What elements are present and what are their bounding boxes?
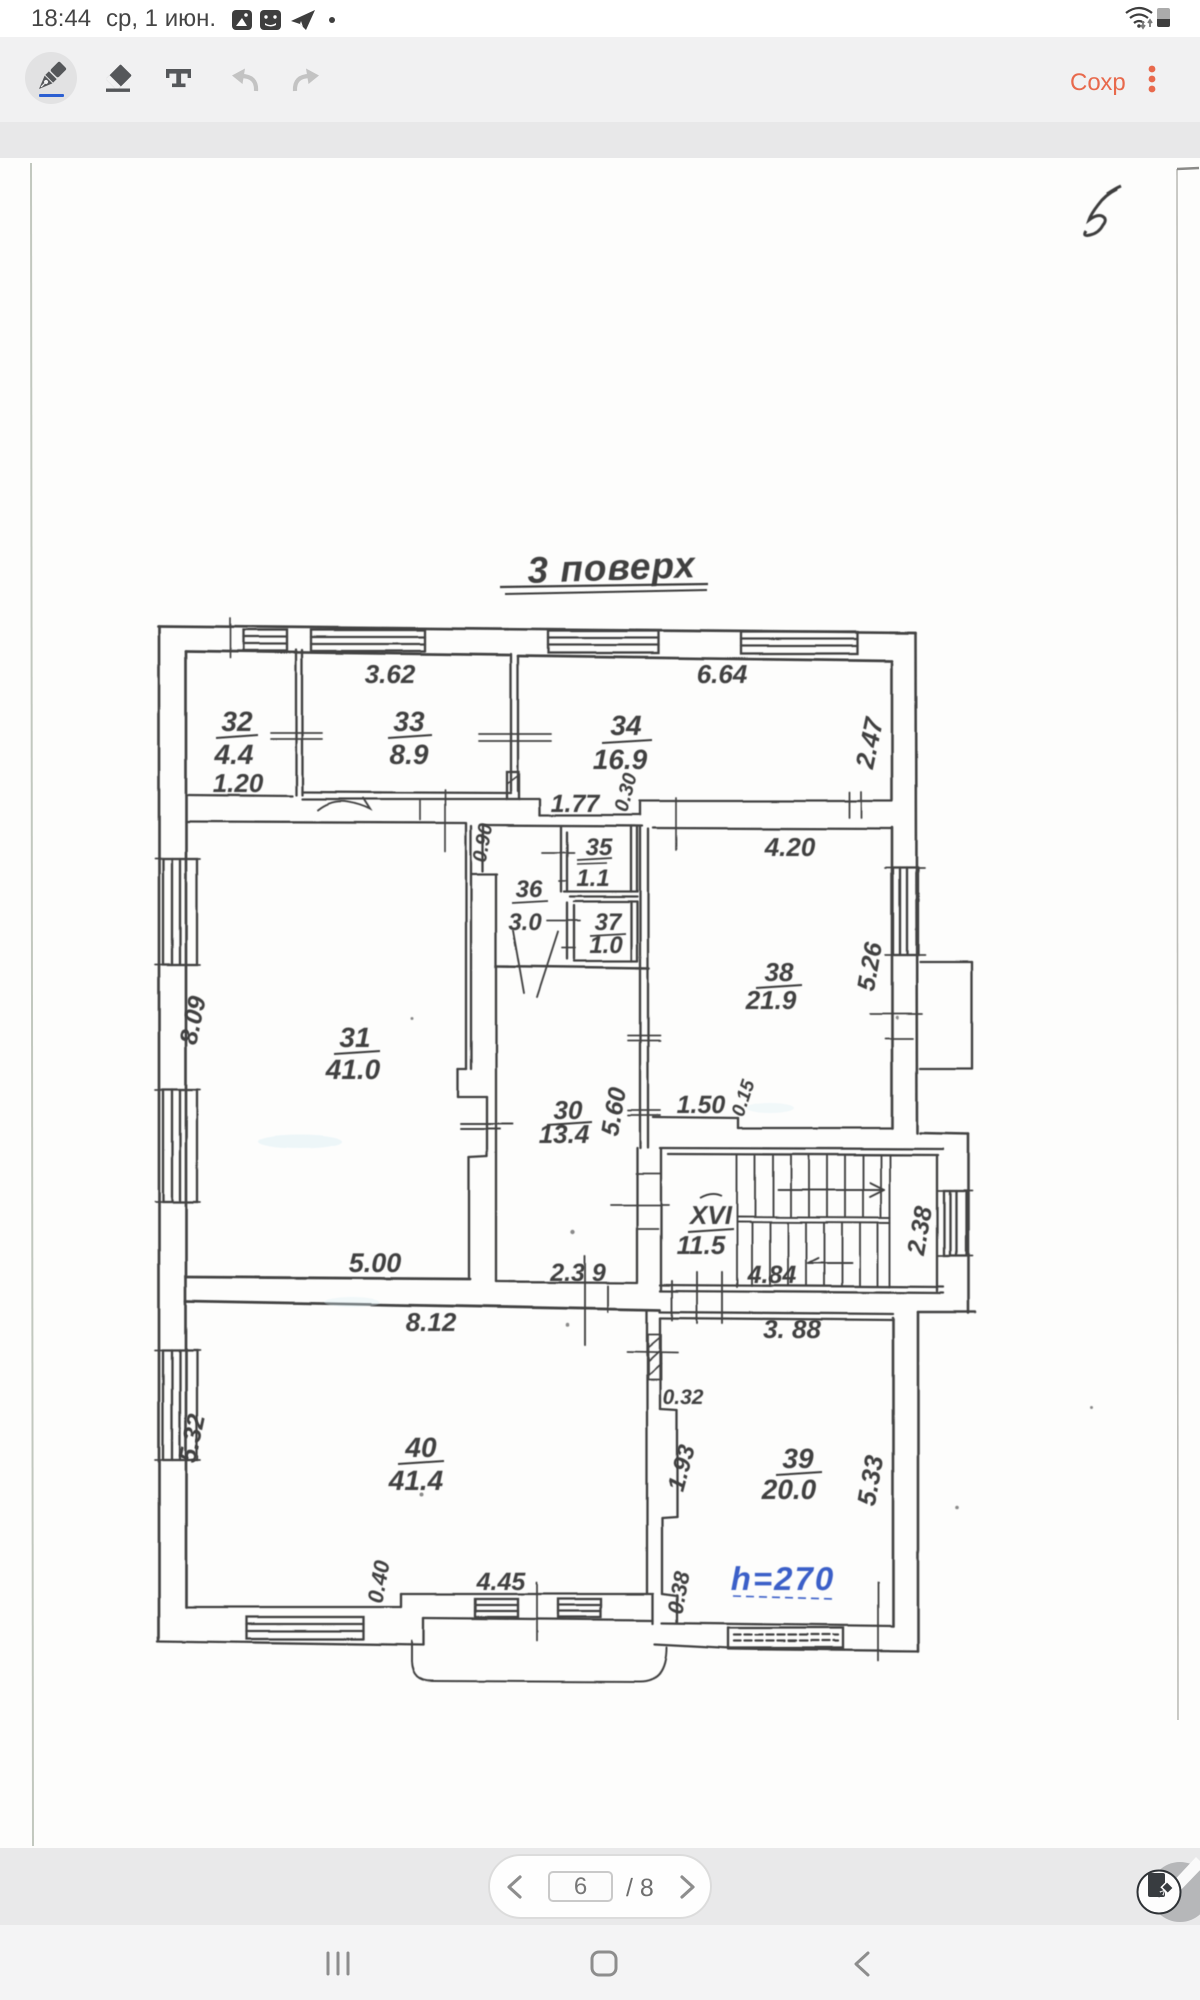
svg-text:XVI: XVI	[688, 1200, 733, 1230]
svg-text:4.84: 4.84	[747, 1261, 797, 1289]
svg-text:20.0: 20.0	[761, 1474, 817, 1505]
svg-text:1.0: 1.0	[589, 932, 623, 959]
svg-text:16.9: 16.9	[593, 744, 648, 775]
svg-text:3. 88: 3. 88	[763, 1314, 821, 1344]
svg-text:1.20: 1.20	[213, 768, 264, 798]
svg-text:5.26: 5.26	[852, 939, 888, 993]
svg-text:8.12: 8.12	[406, 1307, 457, 1337]
svg-text:13.4: 13.4	[539, 1119, 590, 1149]
svg-text:2.38: 2.38	[902, 1204, 938, 1258]
svg-text:32: 32	[221, 706, 253, 737]
svg-text:3.62: 3.62	[365, 659, 416, 689]
svg-text:1.1: 1.1	[576, 865, 609, 892]
svg-text:0.15: 0.15	[728, 1077, 760, 1119]
svg-text:5.60: 5.60	[596, 1085, 632, 1138]
svg-text:3.0: 3.0	[508, 909, 542, 936]
svg-text:4.4: 4.4	[214, 739, 254, 770]
svg-text:0.38: 0.38	[663, 1569, 695, 1616]
svg-text:36: 36	[516, 876, 543, 903]
svg-text:4.45: 4.45	[476, 1568, 527, 1596]
svg-text:40: 40	[404, 1432, 437, 1463]
svg-text:21.9: 21.9	[745, 985, 797, 1015]
svg-text:41.0: 41.0	[325, 1054, 381, 1085]
svg-text:2.3 9: 2.3 9	[549, 1259, 606, 1287]
svg-text:38: 38	[765, 957, 794, 987]
svg-text:5.33: 5.33	[851, 1452, 889, 1508]
svg-text:6.64: 6.64	[697, 659, 748, 689]
svg-text:0.32: 0.32	[663, 1386, 704, 1409]
svg-text:33: 33	[393, 706, 425, 737]
svg-text:1.93: 1.93	[663, 1441, 701, 1494]
svg-text:39: 39	[782, 1443, 814, 1474]
svg-text:5.00: 5.00	[349, 1248, 402, 1278]
svg-text:2.47: 2.47	[849, 714, 889, 772]
svg-text:8.09: 8.09	[174, 994, 212, 1048]
svg-text:41.4: 41.4	[388, 1465, 444, 1496]
svg-text:11.5: 11.5	[677, 1230, 726, 1260]
svg-text:8.9: 8.9	[390, 739, 429, 770]
svg-text:4.20: 4.20	[764, 832, 816, 862]
svg-text:34: 34	[610, 710, 642, 741]
svg-text:0.40: 0.40	[363, 1558, 395, 1605]
svg-text:0.30: 0.30	[611, 771, 642, 814]
svg-text:31: 31	[339, 1022, 370, 1053]
svg-text:h=270: h=270	[731, 1560, 836, 1597]
svg-text:0.90: 0.90	[469, 822, 497, 864]
svg-text:1.77: 1.77	[551, 790, 601, 818]
svg-text:35: 35	[586, 834, 613, 861]
svg-text:1.50: 1.50	[677, 1091, 726, 1119]
